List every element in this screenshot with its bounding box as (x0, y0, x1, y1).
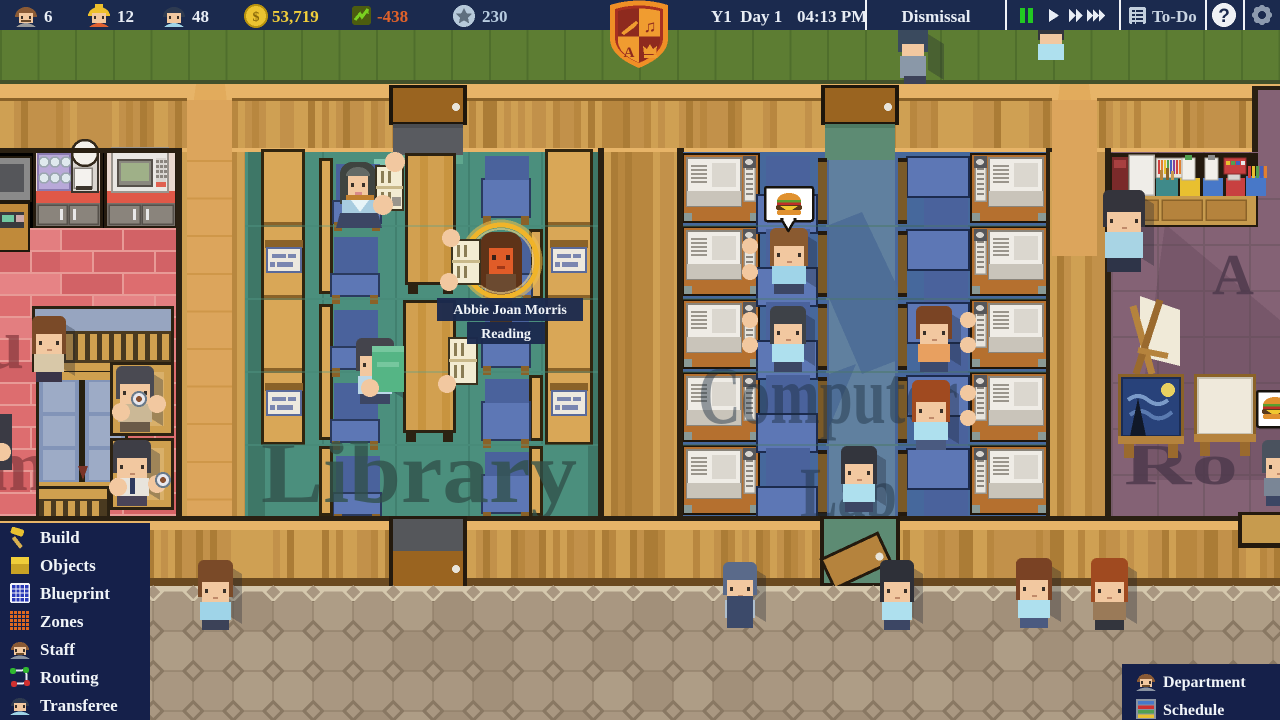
svg-text:04:13 PM: 04:13 PM (797, 7, 867, 26)
svg-text:12: 12 (117, 7, 134, 26)
svg-text:Transferee: Transferee (40, 696, 118, 715)
svg-text:-438: -438 (377, 7, 408, 26)
svg-text:?: ? (1218, 6, 1230, 27)
svg-text:Build: Build (40, 528, 80, 547)
svg-text:Dismissal: Dismissal (902, 7, 971, 26)
svg-text:53,719: 53,719 (272, 7, 319, 26)
svg-text:Routing: Routing (40, 668, 99, 687)
svg-text:To-Do: To-Do (1152, 7, 1197, 26)
svg-text:Department: Department (1163, 674, 1246, 691)
svg-text:6: 6 (44, 7, 53, 26)
svg-text:Library: Library (261, 425, 577, 522)
svg-text:Y1 Day 1: Y1 Day 1 (711, 7, 782, 26)
svg-text:$: $ (253, 10, 260, 25)
svg-text:Schedule: Schedule (1163, 702, 1224, 719)
svg-text:♫: ♫ (644, 17, 657, 36)
svg-text:u: u (0, 304, 24, 384)
svg-text:Blueprint: Blueprint (40, 584, 110, 603)
svg-text:Zones: Zones (40, 612, 84, 631)
svg-text:48: 48 (192, 7, 209, 26)
svg-text:Staff: Staff (40, 640, 75, 659)
svg-text:A: A (1212, 242, 1254, 307)
svg-text:A: A (624, 45, 635, 61)
svg-text:Objects: Objects (40, 556, 96, 575)
svg-text:Reading: Reading (481, 327, 531, 342)
svg-text:230: 230 (482, 7, 508, 26)
svg-text:Abbie Joan Morris: Abbie Joan Morris (453, 303, 567, 318)
